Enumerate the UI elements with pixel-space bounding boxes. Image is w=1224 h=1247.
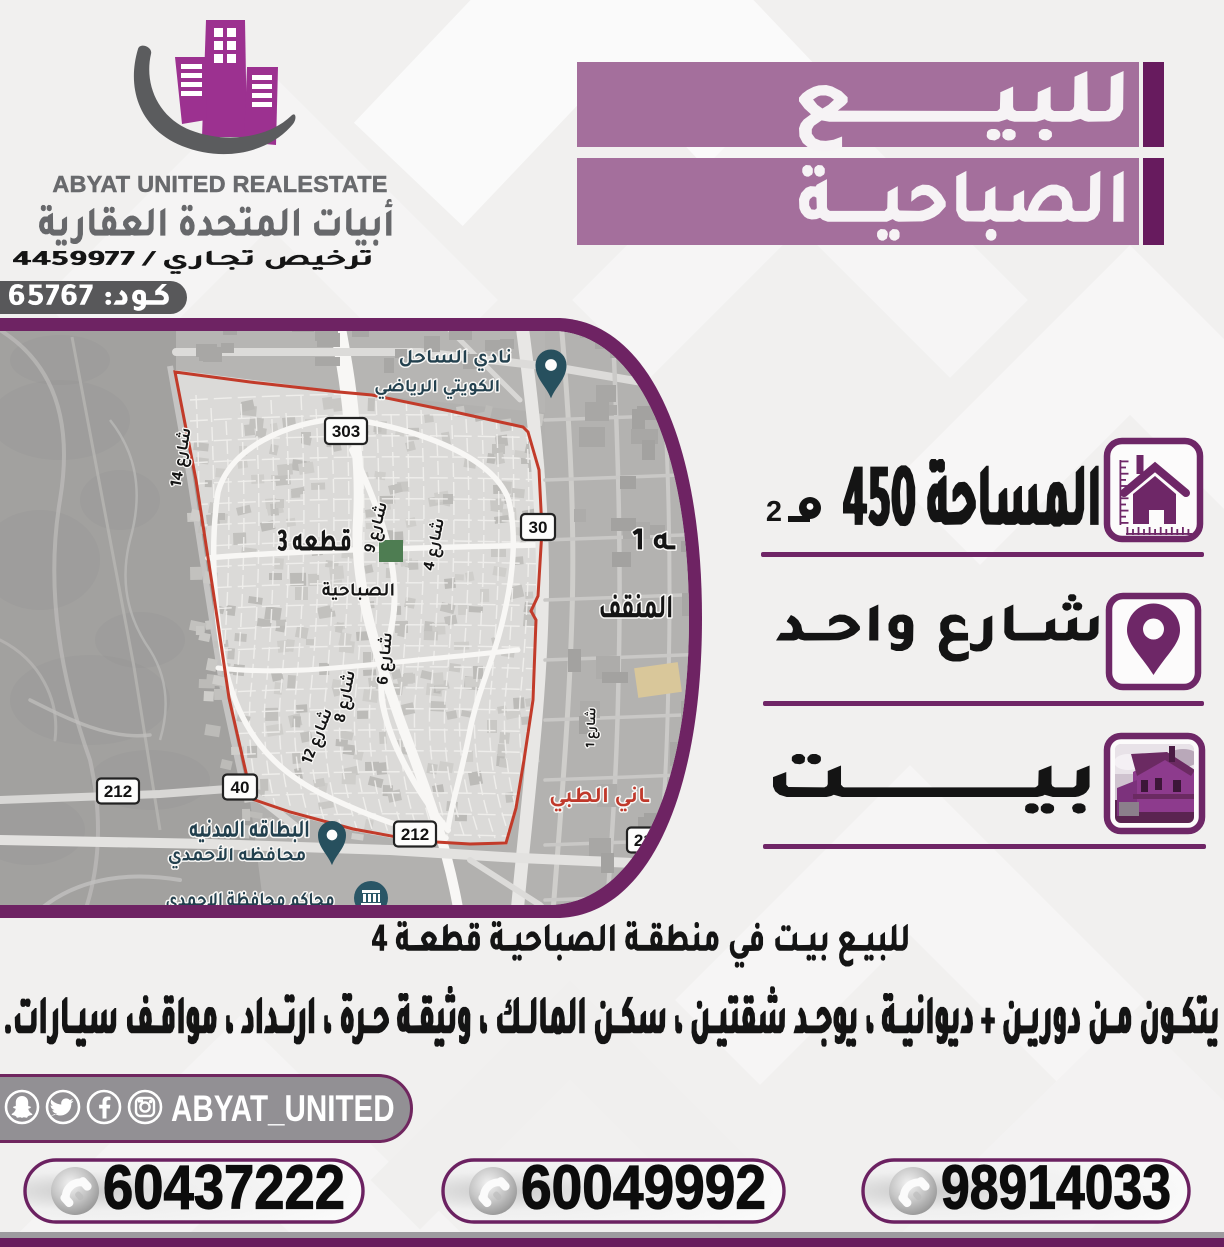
svg-text:60437222: 60437222: [103, 1158, 345, 1223]
svg-text:40: 40: [231, 778, 250, 797]
svg-text:30: 30: [529, 518, 548, 537]
svg-text:2: 2: [766, 496, 782, 526]
svg-text:212: 212: [104, 782, 132, 801]
svg-text:303: 303: [332, 422, 360, 441]
svg-text:98914033: 98914033: [941, 1158, 1171, 1223]
svg-text:212: 212: [401, 825, 429, 844]
svg-text:60049992: 60049992: [521, 1158, 766, 1223]
